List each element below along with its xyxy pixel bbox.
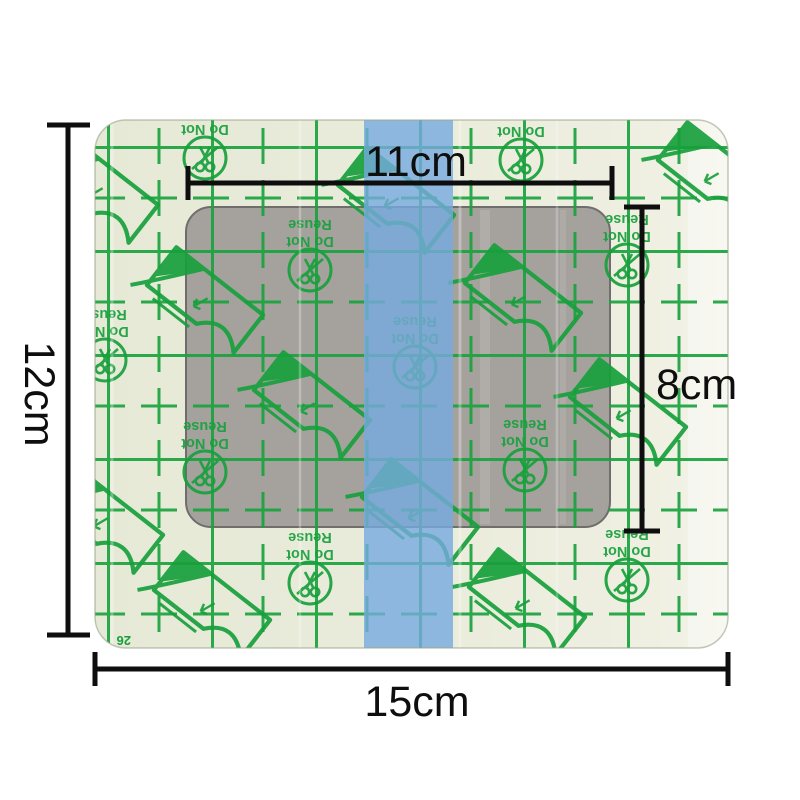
dim-label-window-width: 11cm bbox=[365, 138, 467, 186]
dim-label-outer-height: 12cm bbox=[15, 341, 63, 446]
dim-label-outer-width: 15cm bbox=[364, 678, 469, 726]
application-stripe bbox=[364, 120, 453, 648]
dim-label-pad-height: 8cm bbox=[656, 361, 737, 409]
product-image: Do Not Reuse bbox=[0, 0, 800, 800]
liner-code: 26 bbox=[117, 633, 131, 648]
product-photo-svg: Do Not Reuse bbox=[0, 0, 800, 800]
